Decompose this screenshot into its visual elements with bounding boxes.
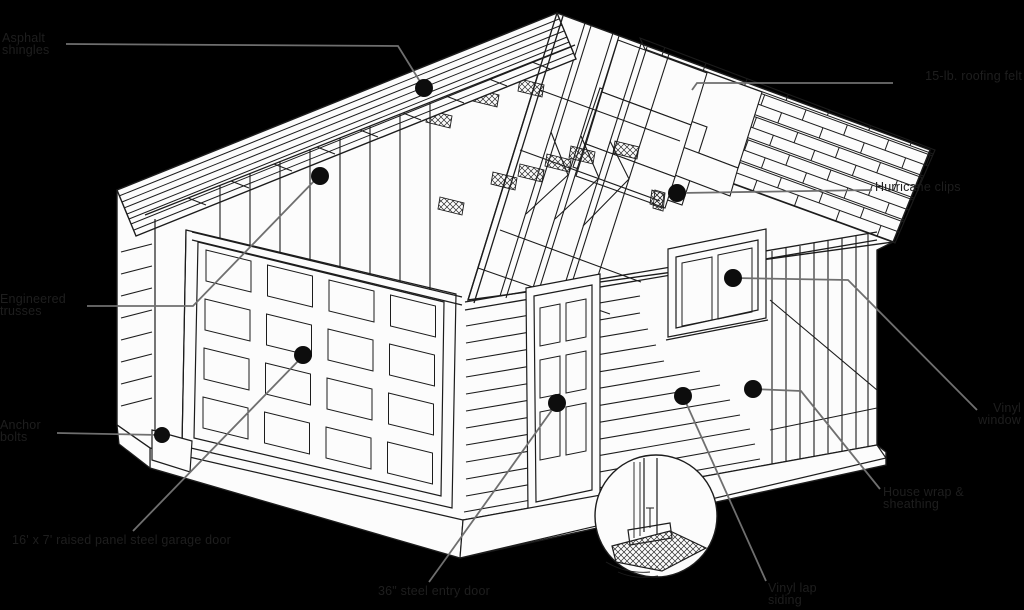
label-garage-door: 16' x 7' raised panel steel garage door (12, 534, 231, 546)
dot-shingles (415, 79, 433, 97)
label-roofing-felt: 15-lb. roofing felt (925, 70, 1022, 82)
label-house-wrap: House wrap & sheathing (883, 486, 964, 510)
label-siding: Vinyl lap siding (768, 582, 817, 606)
label-trusses: Engineered trusses (0, 293, 66, 317)
garage-line-drawing (0, 0, 1024, 610)
dot-house-wrap (744, 380, 762, 398)
dot-siding (674, 387, 692, 405)
dot-hurricane (668, 184, 686, 202)
foundation-detail-circle (595, 455, 717, 577)
label-anchor-bolts: Anchor bolts (0, 419, 41, 443)
dot-garage-door (294, 346, 312, 364)
dot-anchor-bolts (154, 427, 170, 443)
dot-window (724, 269, 742, 287)
leader-shingles (66, 44, 424, 88)
entry-door (526, 274, 600, 512)
label-entry-door: 36" steel entry door (378, 585, 490, 597)
label-window: Vinyl window (978, 402, 1021, 426)
label-hurricane-clips: Hurricane clips (875, 181, 961, 193)
garage-diagram: Asphalt shingles 15-lb. roofing felt Hur… (0, 0, 1024, 610)
label-shingles: Asphalt shingles (2, 32, 49, 56)
dot-trusses (311, 167, 329, 185)
hurricane-clip (653, 190, 665, 211)
dot-entry-door (548, 394, 566, 412)
